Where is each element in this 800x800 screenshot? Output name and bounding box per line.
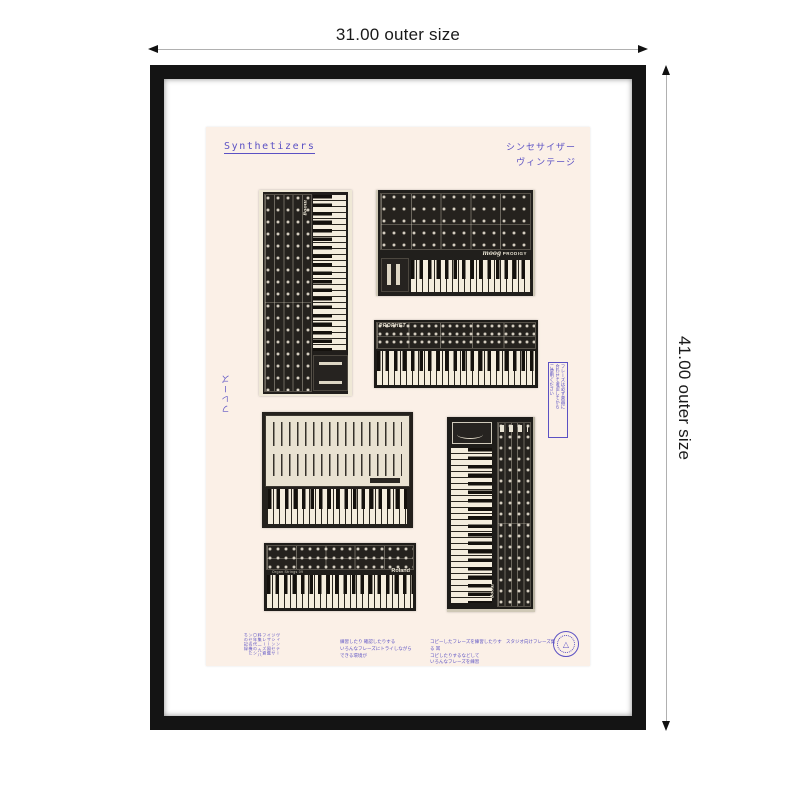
slider-panel	[265, 415, 410, 487]
stamp-box-column: ご使用ください	[550, 364, 555, 436]
brand-label: PROPHET	[379, 323, 406, 329]
poster-title: Synthetizers	[224, 141, 315, 154]
keyboard	[411, 260, 531, 292]
brand-label: moog	[489, 584, 494, 598]
model-label: PRODIGY	[503, 251, 527, 256]
arrow-right-icon	[638, 45, 648, 53]
pitch-wheel-panel	[313, 355, 348, 391]
footer-line: スタジオ向けフレーズ集	[506, 639, 558, 646]
synth-illustration-moog-prodigy: moog PRODIGY	[376, 190, 535, 296]
stamp-box-column: 合わせて確認してから	[556, 364, 561, 436]
side-left-vertical-text: フレーズ	[220, 367, 231, 413]
synth-body: moog	[263, 192, 348, 394]
arrow-down-icon	[662, 721, 670, 731]
stamp-box-column: フレーズは必ず楽器に	[561, 364, 566, 436]
mod-wheels	[381, 258, 409, 292]
synth-illustration-roland-organ: Organ Strings 09 Roland	[264, 543, 416, 611]
brand-row: moog PRODIGY	[483, 250, 528, 257]
footer-line: いろんなフレーズにトライしながら	[340, 646, 426, 653]
subtitle-line-1: シンセサイザー	[506, 140, 576, 155]
model-label: Organ Strings 09	[272, 570, 303, 574]
stamp-inner-ring	[557, 635, 575, 653]
width-dimension-line	[150, 49, 646, 50]
footer-line: できる環境が	[340, 653, 426, 660]
keyboard	[377, 351, 535, 385]
footer-paragraph-1: 練習したり 確認したりする いろんなフレーズにトライしながら できる環境が	[340, 639, 426, 659]
brand-label: moog	[483, 250, 502, 257]
poster: Synthetizers シンセサイザー ヴィンテージ moog	[206, 127, 590, 666]
knob-panel	[497, 422, 531, 607]
brand-label: moog	[302, 200, 308, 215]
side-right-stamp-box: フレーズは必ず楽器に 合わせて確認してから ご使用ください	[548, 362, 568, 438]
subtitle-line-2: ヴィンテージ	[506, 155, 576, 170]
knob-panel	[380, 193, 531, 250]
poster-subtitle-japanese: シンセサイザー ヴィンテージ	[506, 140, 576, 171]
footer-paragraph-2: コピーしたフレーズを練習したりする 耳 コピしたりするなどして いろんなフレーズ…	[430, 639, 502, 666]
picture-frame: Synthetizers シンセサイザー ヴィンテージ moog	[150, 65, 646, 730]
keyboard	[268, 489, 407, 524]
slider-row	[273, 422, 402, 446]
height-dimension-label: 41.00 outer size	[674, 67, 694, 729]
keyboard	[267, 575, 413, 608]
height-dimension-line	[666, 67, 667, 729]
keyboard-vertical	[451, 448, 492, 603]
arrow-left-icon	[148, 45, 158, 53]
footer-line: いろんなフレーズを練習	[430, 659, 502, 666]
keyboard-vertical	[313, 195, 346, 351]
synth-illustration-moog-vertical-2: moog	[447, 417, 535, 612]
footer-paragraph-3: スタジオ向けフレーズ集	[506, 639, 558, 646]
width-dimension-label: 31.00 outer size	[150, 25, 646, 45]
footer-line: コピーしたフレーズを練習したりする 耳	[430, 639, 502, 653]
synth-illustration-moog-vertical: moog	[259, 190, 352, 396]
synth-illustration-prophet: PROPHET	[374, 320, 538, 388]
brand-label: Roland	[391, 568, 410, 574]
footer-left-text-block: ヴィンテージシンセサイザー図鑑フレーズ資料集 一九八〇年代のシンセ名機たちの記録	[222, 633, 280, 659]
circular-stamp-icon: △	[553, 631, 579, 657]
control-panel	[266, 545, 414, 570]
logo-display-box	[452, 422, 492, 444]
arrow-up-icon	[662, 65, 670, 75]
frame-matte: Synthetizers シンセサイザー ヴィンテージ moog	[164, 79, 632, 716]
knob-panel	[264, 194, 312, 392]
footer-line: 練習したり 確認したりする	[340, 639, 426, 646]
slider-row	[273, 454, 402, 476]
synth-illustration-arp-odyssey	[262, 412, 413, 528]
panel-label-strip	[370, 478, 400, 483]
